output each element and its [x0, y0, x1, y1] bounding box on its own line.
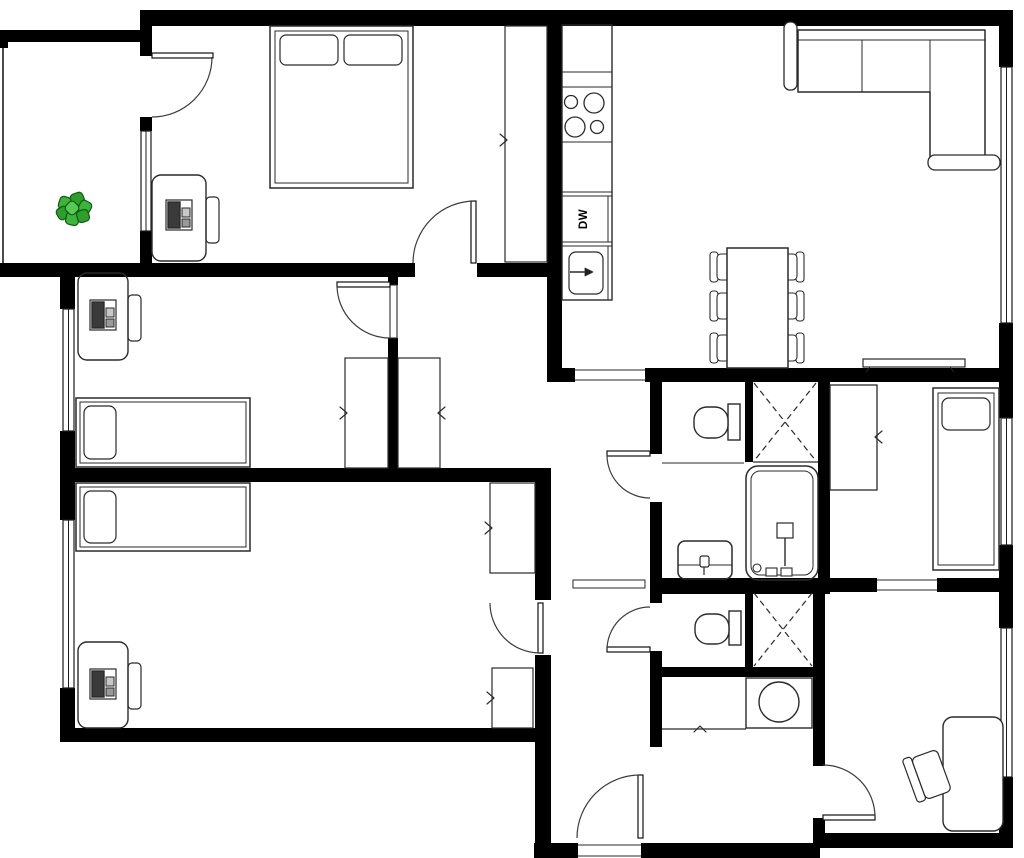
door-entry-leaf — [638, 775, 643, 838]
bathroom-sink-tap — [700, 556, 709, 567]
balcony-wall-corner — [0, 30, 8, 48]
bathtub-faucet — [777, 523, 793, 538]
computer-tower — [182, 208, 190, 217]
bathtub-handle — [766, 568, 777, 576]
wall-bedroom3-right — [535, 655, 551, 843]
wall-hallway-bathroom — [650, 502, 662, 603]
wall-entry-bottom — [641, 843, 820, 858]
computer-screen — [92, 302, 104, 328]
wall-entry-bottom — [534, 843, 578, 858]
wall-bedroom2-hall — [388, 338, 398, 468]
computer-tower — [106, 677, 114, 686]
balcony-wall-top — [8, 30, 142, 42]
shower-partition — [745, 592, 753, 667]
wall-bedroom2-bedroom3 — [60, 468, 551, 482]
wall-right — [999, 323, 1013, 418]
doorjamb-bedroom2 — [390, 285, 397, 338]
door-bedroom1-leaf — [471, 201, 476, 263]
computer-tower — [106, 308, 114, 317]
door-wc-leaf — [607, 647, 650, 652]
wall-left — [60, 263, 75, 309]
computer-screen — [92, 671, 104, 697]
sofa-armrest — [928, 155, 1000, 170]
toilet-bowl — [694, 407, 728, 438]
door-balcony-leaf — [152, 53, 213, 58]
wall-top — [143, 10, 1013, 26]
desk — [943, 717, 1003, 831]
pillow — [280, 35, 338, 65]
dishwasher-label: DW — [578, 209, 590, 229]
sideboard — [863, 359, 965, 367]
computer-tower — [182, 219, 190, 227]
pillow — [942, 398, 990, 430]
wall-living-bottom — [562, 368, 575, 382]
door-bathroom-leaf — [607, 451, 650, 456]
computer-tower — [106, 319, 114, 327]
wall-bedroom4-bottom — [830, 578, 877, 592]
sofa-armrest — [784, 22, 797, 90]
wall-hallway-bathroom — [650, 382, 662, 454]
wall-entry-wc — [650, 651, 662, 747]
computer-tower — [106, 688, 114, 696]
computer-screen — [168, 202, 180, 228]
wall-balcony-bedroom1 — [140, 10, 152, 56]
bathtub-handle — [781, 568, 792, 576]
toilet-tank — [728, 404, 740, 440]
wall-bottom-left — [60, 728, 551, 742]
wall-bathroom-bedroom4 — [818, 382, 830, 578]
door-bedroom2-leaf — [337, 282, 390, 287]
toilet-bowl — [695, 614, 729, 644]
pillow — [84, 406, 116, 459]
pillow — [84, 491, 116, 543]
wall-office-bottom — [820, 833, 1013, 848]
door-office-leaf — [823, 815, 875, 820]
wall-right — [999, 10, 1013, 67]
toilet-tank — [729, 611, 741, 645]
wall-utility-office — [813, 592, 825, 766]
wall-bedroom4-bottom — [937, 578, 1013, 592]
floor-plan: DW — [0, 0, 1024, 858]
wall-balcony-bedroom1 — [140, 231, 152, 263]
wall-balcony-bedroom1 — [140, 117, 152, 131]
wall-living-bottom — [645, 368, 1013, 382]
wall-wc-utility — [662, 667, 813, 677]
pillow — [344, 35, 402, 65]
wall-bedroom3-right — [535, 468, 551, 600]
wall-kitchen-divider — [547, 10, 562, 382]
floor-plan-svg: DW — [0, 0, 1024, 858]
shower-partition — [745, 382, 753, 462]
door-bedroom3-leaf — [538, 603, 543, 653]
dining-table — [727, 248, 788, 368]
